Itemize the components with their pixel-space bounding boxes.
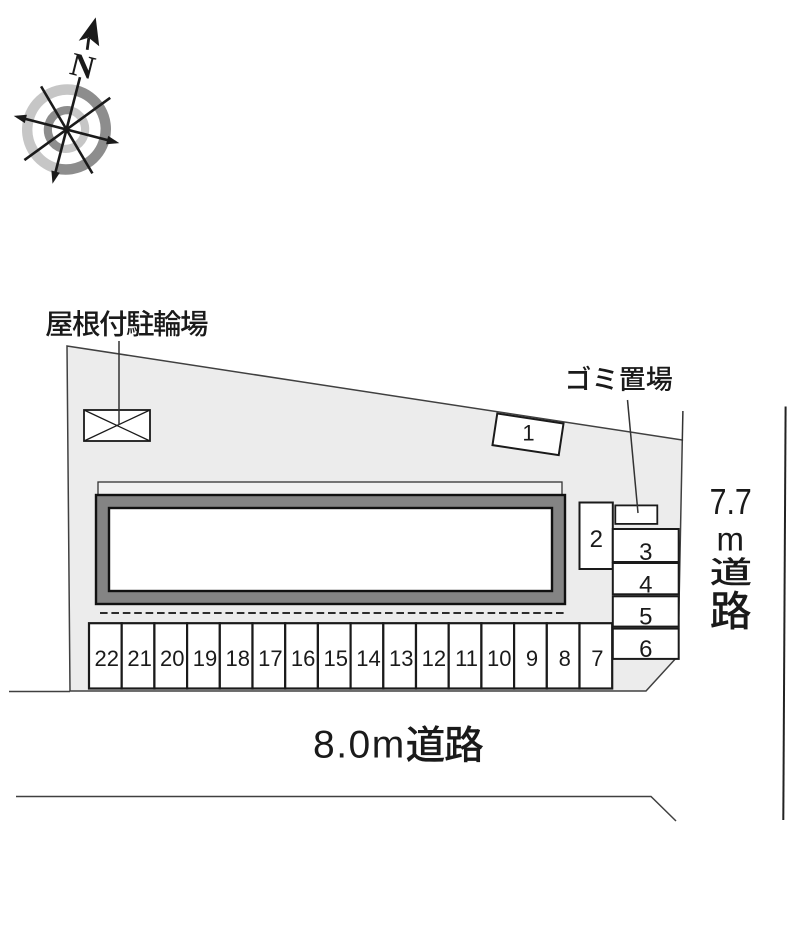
svg-text:8: 8 [559,646,571,671]
svg-text:17: 17 [258,646,282,671]
svg-text:20: 20 [160,646,184,671]
svg-text:4: 4 [639,571,652,598]
svg-text:14: 14 [356,646,380,671]
svg-text:15: 15 [324,646,348,671]
svg-text:19: 19 [193,646,217,671]
svg-text:21: 21 [127,646,151,671]
svg-text:12: 12 [422,646,446,671]
svg-text:8.0m: 8.0m [313,724,406,767]
svg-text:7.7: 7.7 [710,481,752,522]
svg-text:9: 9 [526,646,538,671]
svg-text:11: 11 [455,646,478,671]
svg-text:16: 16 [291,646,315,671]
svg-text:6: 6 [639,636,652,663]
svg-text:7: 7 [591,646,603,671]
svg-text:m: m [716,520,744,557]
svg-text:1: 1 [522,421,534,446]
svg-text:N: N [67,47,99,88]
svg-text:3: 3 [639,539,652,566]
svg-text:2: 2 [590,526,603,553]
svg-text:10: 10 [487,646,511,671]
svg-text:5: 5 [639,604,652,631]
svg-text:13: 13 [389,646,413,671]
svg-text:18: 18 [225,646,249,671]
svg-text:22: 22 [95,646,119,671]
